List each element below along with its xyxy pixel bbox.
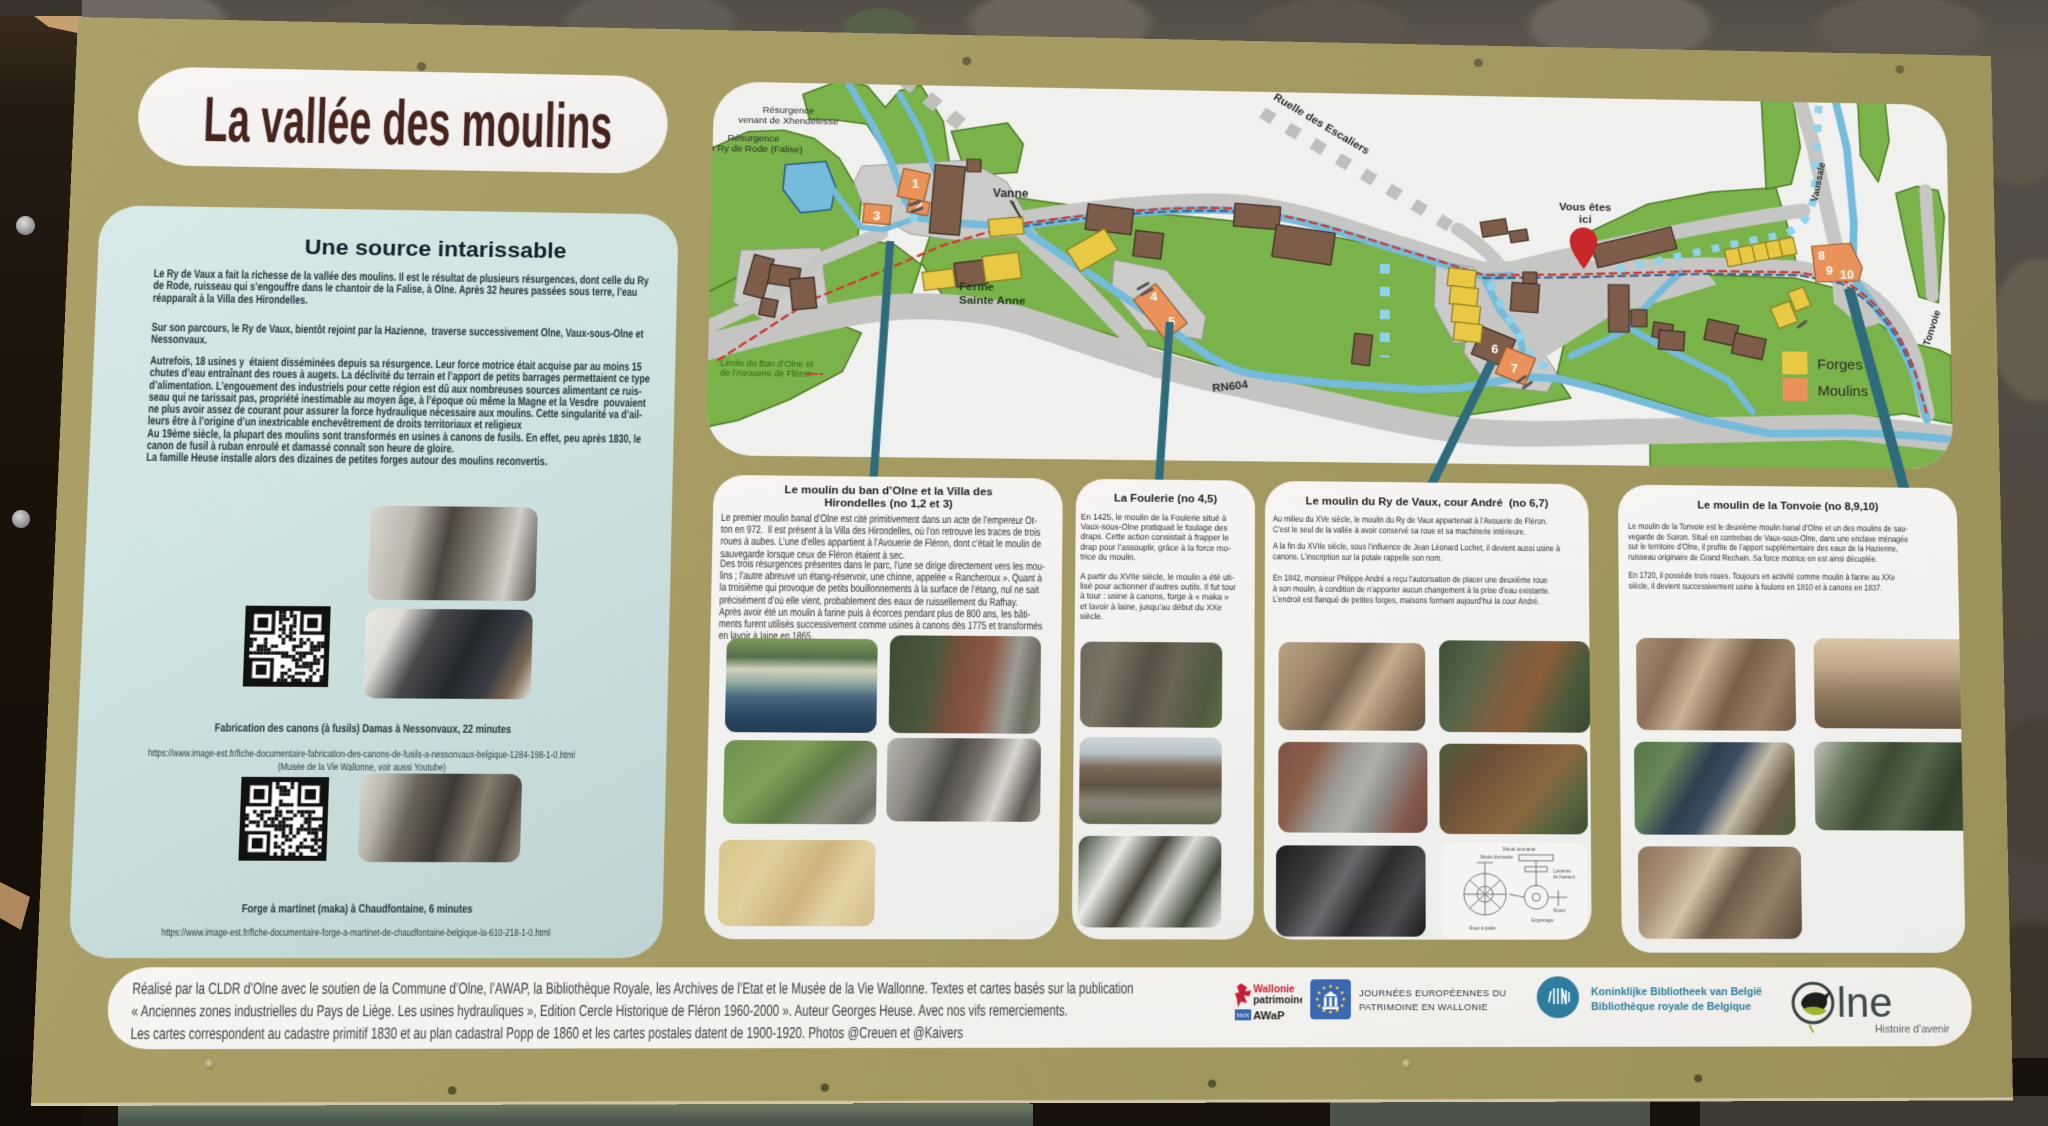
- svg-text:Lanterne: Lanterne: [1553, 869, 1571, 874]
- svg-text:patrimoine: patrimoine: [1253, 995, 1302, 1006]
- svg-text:AWaP: AWaP: [1253, 1010, 1284, 1022]
- svg-text:Meule tournante: Meule tournante: [1503, 847, 1536, 852]
- svg-text:de fuseaux: de fuseaux: [1553, 875, 1576, 880]
- svg-text:Wallonie: Wallonie: [1253, 984, 1295, 995]
- svg-text:Roue à pales: Roue à pales: [1469, 926, 1496, 931]
- svg-text:Engrenage: Engrenage: [1531, 918, 1554, 923]
- svg-text:Histoire d’avenir: Histoire d’avenir: [1875, 1024, 1950, 1036]
- svg-text:Meule dormante: Meule dormante: [1480, 855, 1513, 860]
- svg-text:Rouet: Rouet: [1553, 908, 1566, 913]
- svg-text:NVX: NVX: [1237, 1013, 1250, 1019]
- svg-text:lne: lne: [1836, 979, 1892, 1025]
